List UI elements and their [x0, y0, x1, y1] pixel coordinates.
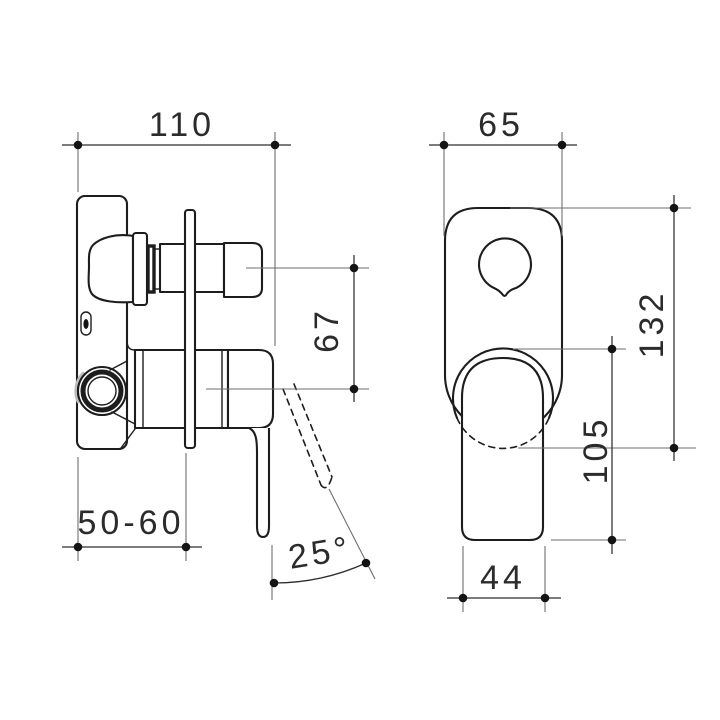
dim-dot [440, 141, 449, 150]
dim-label-plate-width: 65 [478, 106, 524, 144]
dim-wall-fixing-range: 50-60 [62, 453, 202, 561]
handle-lever-rotated-dashed [283, 384, 332, 488]
drawing-canvas: 110 67 50-60 25° [0, 0, 720, 720]
dim-dot [74, 141, 83, 150]
dim-dot [670, 444, 679, 453]
side-view: 110 67 50-60 25° [62, 106, 375, 600]
dim-dot [558, 141, 567, 150]
front-view: 65 132 105 44 [429, 106, 696, 612]
dim-dot [74, 543, 83, 552]
diverter-knob [224, 243, 262, 297]
dim-label-plate-height: 132 [633, 290, 671, 359]
dim-dot [270, 579, 279, 588]
dim-dot [182, 543, 191, 552]
dim-label-wall-fixing-range: 50-60 [78, 504, 185, 542]
dim-dot [608, 345, 617, 354]
body-outline-mid [127, 340, 135, 350]
wall-plate-edge [185, 210, 195, 448]
dim-label-handle-assembly-height: 105 [577, 416, 615, 485]
dim-handle-width: 44 [447, 546, 561, 612]
upper-valve-boss [89, 235, 133, 302]
dim-dot [541, 594, 550, 603]
diverter-collar-dark [148, 246, 154, 292]
mixer-dimension-drawing: 110 67 50-60 25° [0, 0, 720, 720]
fixing-slot [83, 319, 88, 329]
handle-lever [249, 428, 269, 537]
dim-label-handle-angle: 25° [286, 529, 355, 576]
dim-dot [362, 559, 371, 568]
diverter-assembly [133, 233, 262, 305]
dim-dot [608, 536, 617, 545]
dim-dot [271, 141, 280, 150]
diverter-flange [133, 233, 147, 305]
dim-dot [350, 264, 359, 273]
dim-label-overall-depth: 110 [149, 106, 215, 144]
dim-handle-angle: 25° [270, 489, 375, 600]
dim-label-handle-width: 44 [480, 559, 526, 597]
rotated-lever-tip [321, 477, 332, 488]
dim-dot [350, 385, 359, 394]
dim-label-port-spacing: 67 [308, 307, 346, 353]
dim-dot [670, 204, 679, 213]
dim-dot [459, 594, 468, 603]
